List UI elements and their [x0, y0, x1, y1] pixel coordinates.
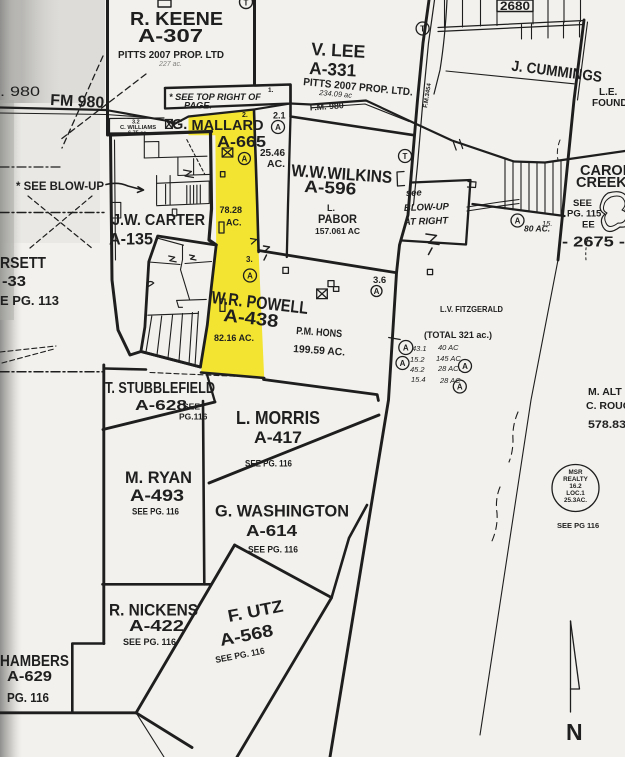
svg-text:BLOW-UP: BLOW-UP: [404, 201, 450, 214]
svg-text:. 980: . 980: [0, 83, 40, 99]
svg-text:PAGE.: PAGE.: [184, 101, 212, 111]
svg-text:G. WASHINGTON: G. WASHINGTON: [215, 502, 349, 521]
svg-text:1.: 1.: [268, 87, 274, 94]
svg-text:C. ROUG: C. ROUG: [586, 400, 625, 412]
svg-text:FOUNDA: FOUNDA: [592, 98, 625, 109]
svg-text:78.28: 78.28: [220, 205, 243, 215]
svg-text:PG.116: PG.116: [179, 412, 208, 422]
svg-text:25.3AC.: 25.3AC.: [564, 497, 587, 504]
svg-text:T. STUBBLEFIELD: T. STUBBLEFIELD: [105, 380, 215, 397]
svg-text:16.2: 16.2: [569, 483, 582, 490]
svg-text:A-135: A-135: [109, 230, 153, 249]
svg-text:PG. 116: PG. 116: [7, 690, 49, 705]
svg-text:SEE PG. 116: SEE PG. 116: [248, 545, 298, 556]
svg-text:43.1: 43.1: [412, 344, 427, 353]
svg-text:T: T: [244, 0, 249, 8]
svg-text:SEE PG. 116: SEE PG. 116: [123, 637, 176, 648]
svg-text:G.: G.: [172, 117, 187, 133]
svg-text:R. NICKENS: R. NICKENS: [109, 601, 198, 620]
svg-text:M. RYAN: M. RYAN: [125, 468, 192, 487]
svg-text:* SEE TOP RIGHT OF: * SEE TOP RIGHT OF: [169, 92, 261, 102]
svg-text:see: see: [406, 187, 423, 199]
svg-text:A: A: [515, 217, 521, 226]
svg-text:15.: 15.: [542, 219, 552, 228]
svg-text:J.W. CARTER: J.W. CARTER: [112, 212, 205, 229]
svg-text:A: A: [403, 344, 409, 353]
svg-text:T: T: [420, 25, 425, 34]
svg-text:A-596: A-596: [304, 177, 357, 199]
svg-text:L. MORRIS: L. MORRIS: [236, 408, 320, 428]
svg-text:A-422: A-422: [129, 618, 184, 635]
svg-text:A-614: A-614: [246, 523, 297, 540]
svg-text:M. ALT: M. ALT: [588, 386, 622, 398]
svg-text:2680: 2680: [500, 1, 530, 13]
svg-text:PABOR: PABOR: [318, 214, 358, 226]
svg-text:A: A: [457, 383, 463, 392]
svg-text:28 AC.: 28 AC.: [437, 364, 461, 373]
svg-text:578.83: 578.83: [588, 419, 625, 431]
svg-text:45.2: 45.2: [410, 365, 425, 374]
svg-text:PG. 115: PG. 115: [567, 209, 602, 220]
svg-text:3.: 3.: [246, 255, 253, 264]
svg-text:3.6: 3.6: [373, 275, 386, 286]
svg-text:157.061 AC: 157.061 AC: [315, 227, 360, 236]
svg-text:A: A: [374, 287, 380, 296]
svg-text:AC.: AC.: [226, 218, 242, 228]
svg-text:AT RIGHT: AT RIGHT: [403, 215, 450, 228]
svg-text:E PG. 113: E PG. 113: [0, 293, 59, 308]
svg-text:N: N: [566, 719, 583, 745]
svg-text:MALLARD: MALLARD: [192, 117, 264, 134]
svg-text:MSR: MSR: [569, 469, 583, 476]
svg-text:RSETT: RSETT: [0, 255, 46, 272]
svg-text:PITTS 2007 PROP. LTD: PITTS 2007 PROP. LTD: [118, 49, 224, 61]
svg-text:227 ac.: 227 ac.: [158, 61, 182, 68]
svg-text:A-493: A-493: [130, 487, 184, 505]
svg-text:SEE: SEE: [573, 198, 592, 209]
svg-text:82.16 AC.: 82.16 AC.: [214, 333, 254, 344]
svg-text:A-417: A-417: [254, 429, 302, 447]
svg-text:A: A: [462, 362, 468, 371]
svg-text:15.4: 15.4: [411, 375, 426, 384]
svg-text:A-629: A-629: [7, 668, 52, 685]
svg-text:FM 980: FM 980: [50, 92, 105, 112]
svg-text:REALTY: REALTY: [563, 476, 589, 483]
svg-text:- 2675 -: - 2675 -: [562, 234, 625, 251]
svg-text:2.: 2.: [242, 112, 248, 119]
svg-text:(TOTAL 321 ac.): (TOTAL 321 ac.): [424, 330, 492, 340]
svg-text:SEE PG. 116: SEE PG. 116: [132, 507, 179, 518]
svg-text:A: A: [275, 123, 281, 132]
svg-text:SEE PG 116: SEE PG 116: [557, 521, 599, 530]
svg-text:40 AC: 40 AC: [438, 343, 459, 352]
svg-text:-33: -33: [2, 273, 26, 290]
svg-text:L.E.: L.E.: [599, 87, 618, 98]
svg-text:* SEE BLOW-UP: * SEE BLOW-UP: [16, 181, 104, 193]
svg-text:15.2: 15.2: [410, 355, 425, 364]
svg-text:2.1: 2.1: [273, 111, 286, 121]
svg-text:LOC.1: LOC.1: [566, 490, 585, 497]
svg-text:A: A: [242, 155, 248, 164]
svg-text:6.75 ac: 6.75 ac: [128, 131, 146, 137]
svg-text:T: T: [403, 152, 408, 161]
svg-text:SEE: SEE: [183, 402, 200, 412]
svg-text:A-307: A-307: [138, 26, 203, 46]
svg-text:AC.: AC.: [267, 158, 285, 170]
svg-text:SEE PG. 116: SEE PG. 116: [245, 459, 292, 470]
svg-text:EE: EE: [582, 220, 595, 231]
svg-text:L.: L.: [327, 203, 335, 213]
svg-text:145 AC: 145 AC: [436, 354, 461, 363]
svg-text:CREEK E: CREEK E: [576, 175, 625, 191]
svg-text:A: A: [400, 359, 406, 368]
svg-text:L.V. FITZGERALD: L.V. FITZGERALD: [440, 304, 503, 314]
svg-text:A: A: [247, 272, 253, 281]
svg-text:A-665: A-665: [217, 134, 266, 151]
